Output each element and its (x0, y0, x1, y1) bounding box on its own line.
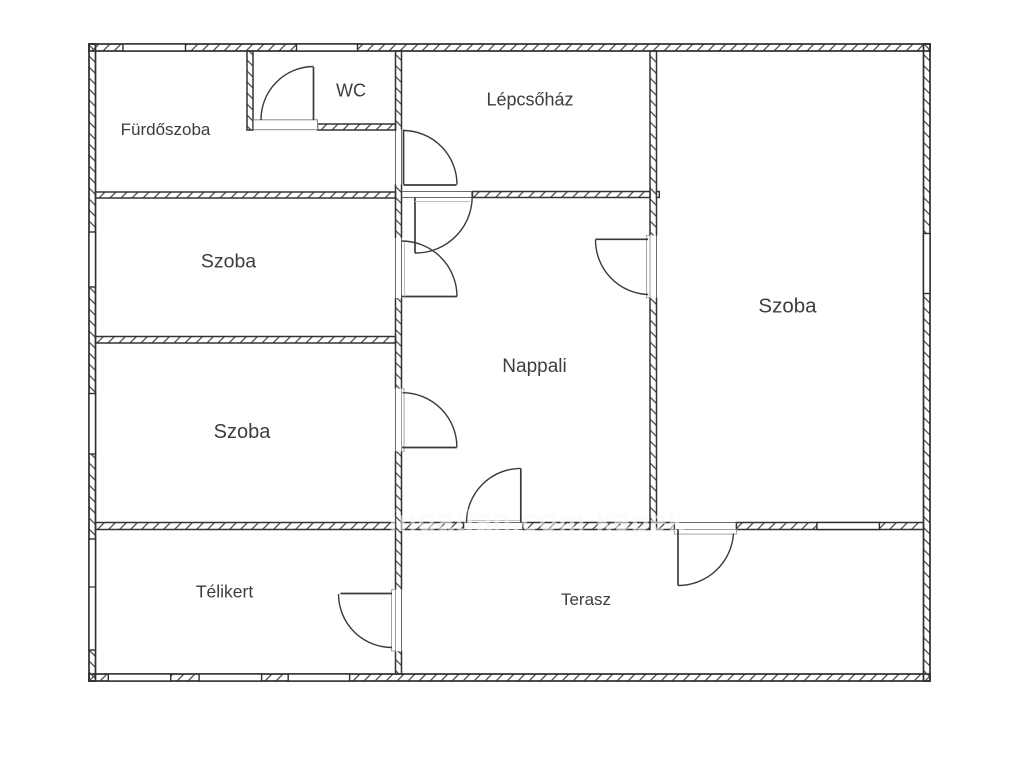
svg-text:Szoba: Szoba (758, 295, 817, 318)
svg-text:Nappali: Nappali (502, 356, 566, 377)
svg-text:Fürdőszoba: Fürdőszoba (121, 120, 211, 139)
svg-text:Szoba: Szoba (201, 251, 256, 273)
svg-text:Lépcsőház: Lépcsőház (486, 90, 573, 110)
svg-text:Terasz: Terasz (561, 590, 611, 609)
svg-text:Télikert: Télikert (196, 582, 254, 602)
svg-text:Szoba: Szoba (214, 421, 272, 443)
svg-text:WC: WC (336, 81, 366, 101)
svg-text:ingatlan.com kepek: ingatlan.com kepek (389, 504, 685, 537)
